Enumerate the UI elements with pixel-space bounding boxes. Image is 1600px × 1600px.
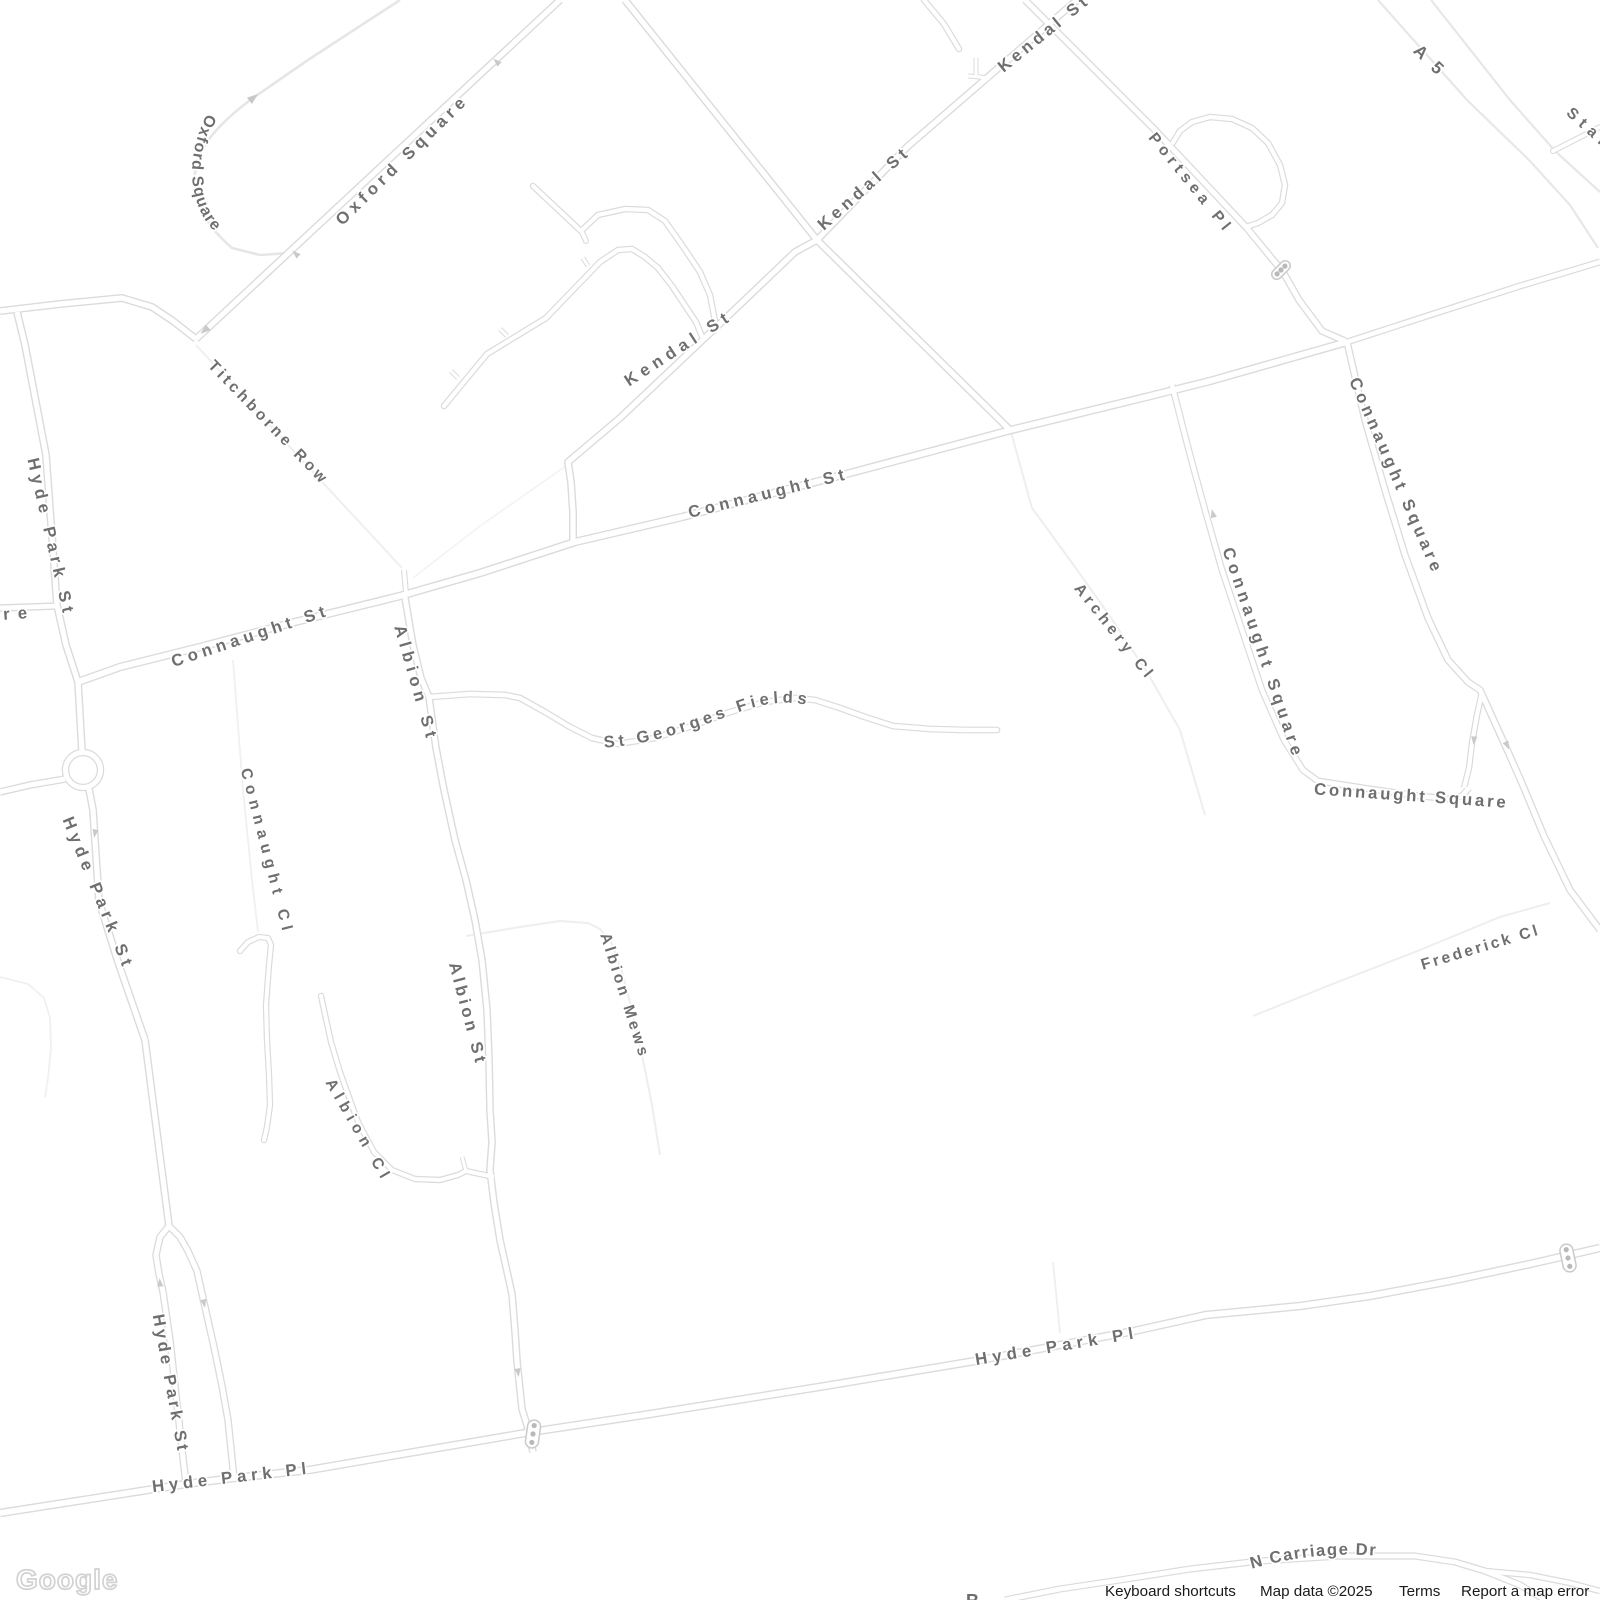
- svg-text:B: B: [966, 1591, 979, 1600]
- svg-text:Google: Google: [16, 1564, 118, 1595]
- svg-text:Terms: Terms: [1399, 1583, 1441, 1600]
- svg-text:Report a map error: Report a map error: [1461, 1583, 1589, 1600]
- svg-text:Map data ©2025: Map data ©2025: [1260, 1583, 1373, 1600]
- svg-text:Keyboard shortcuts: Keyboard shortcuts: [1105, 1583, 1236, 1600]
